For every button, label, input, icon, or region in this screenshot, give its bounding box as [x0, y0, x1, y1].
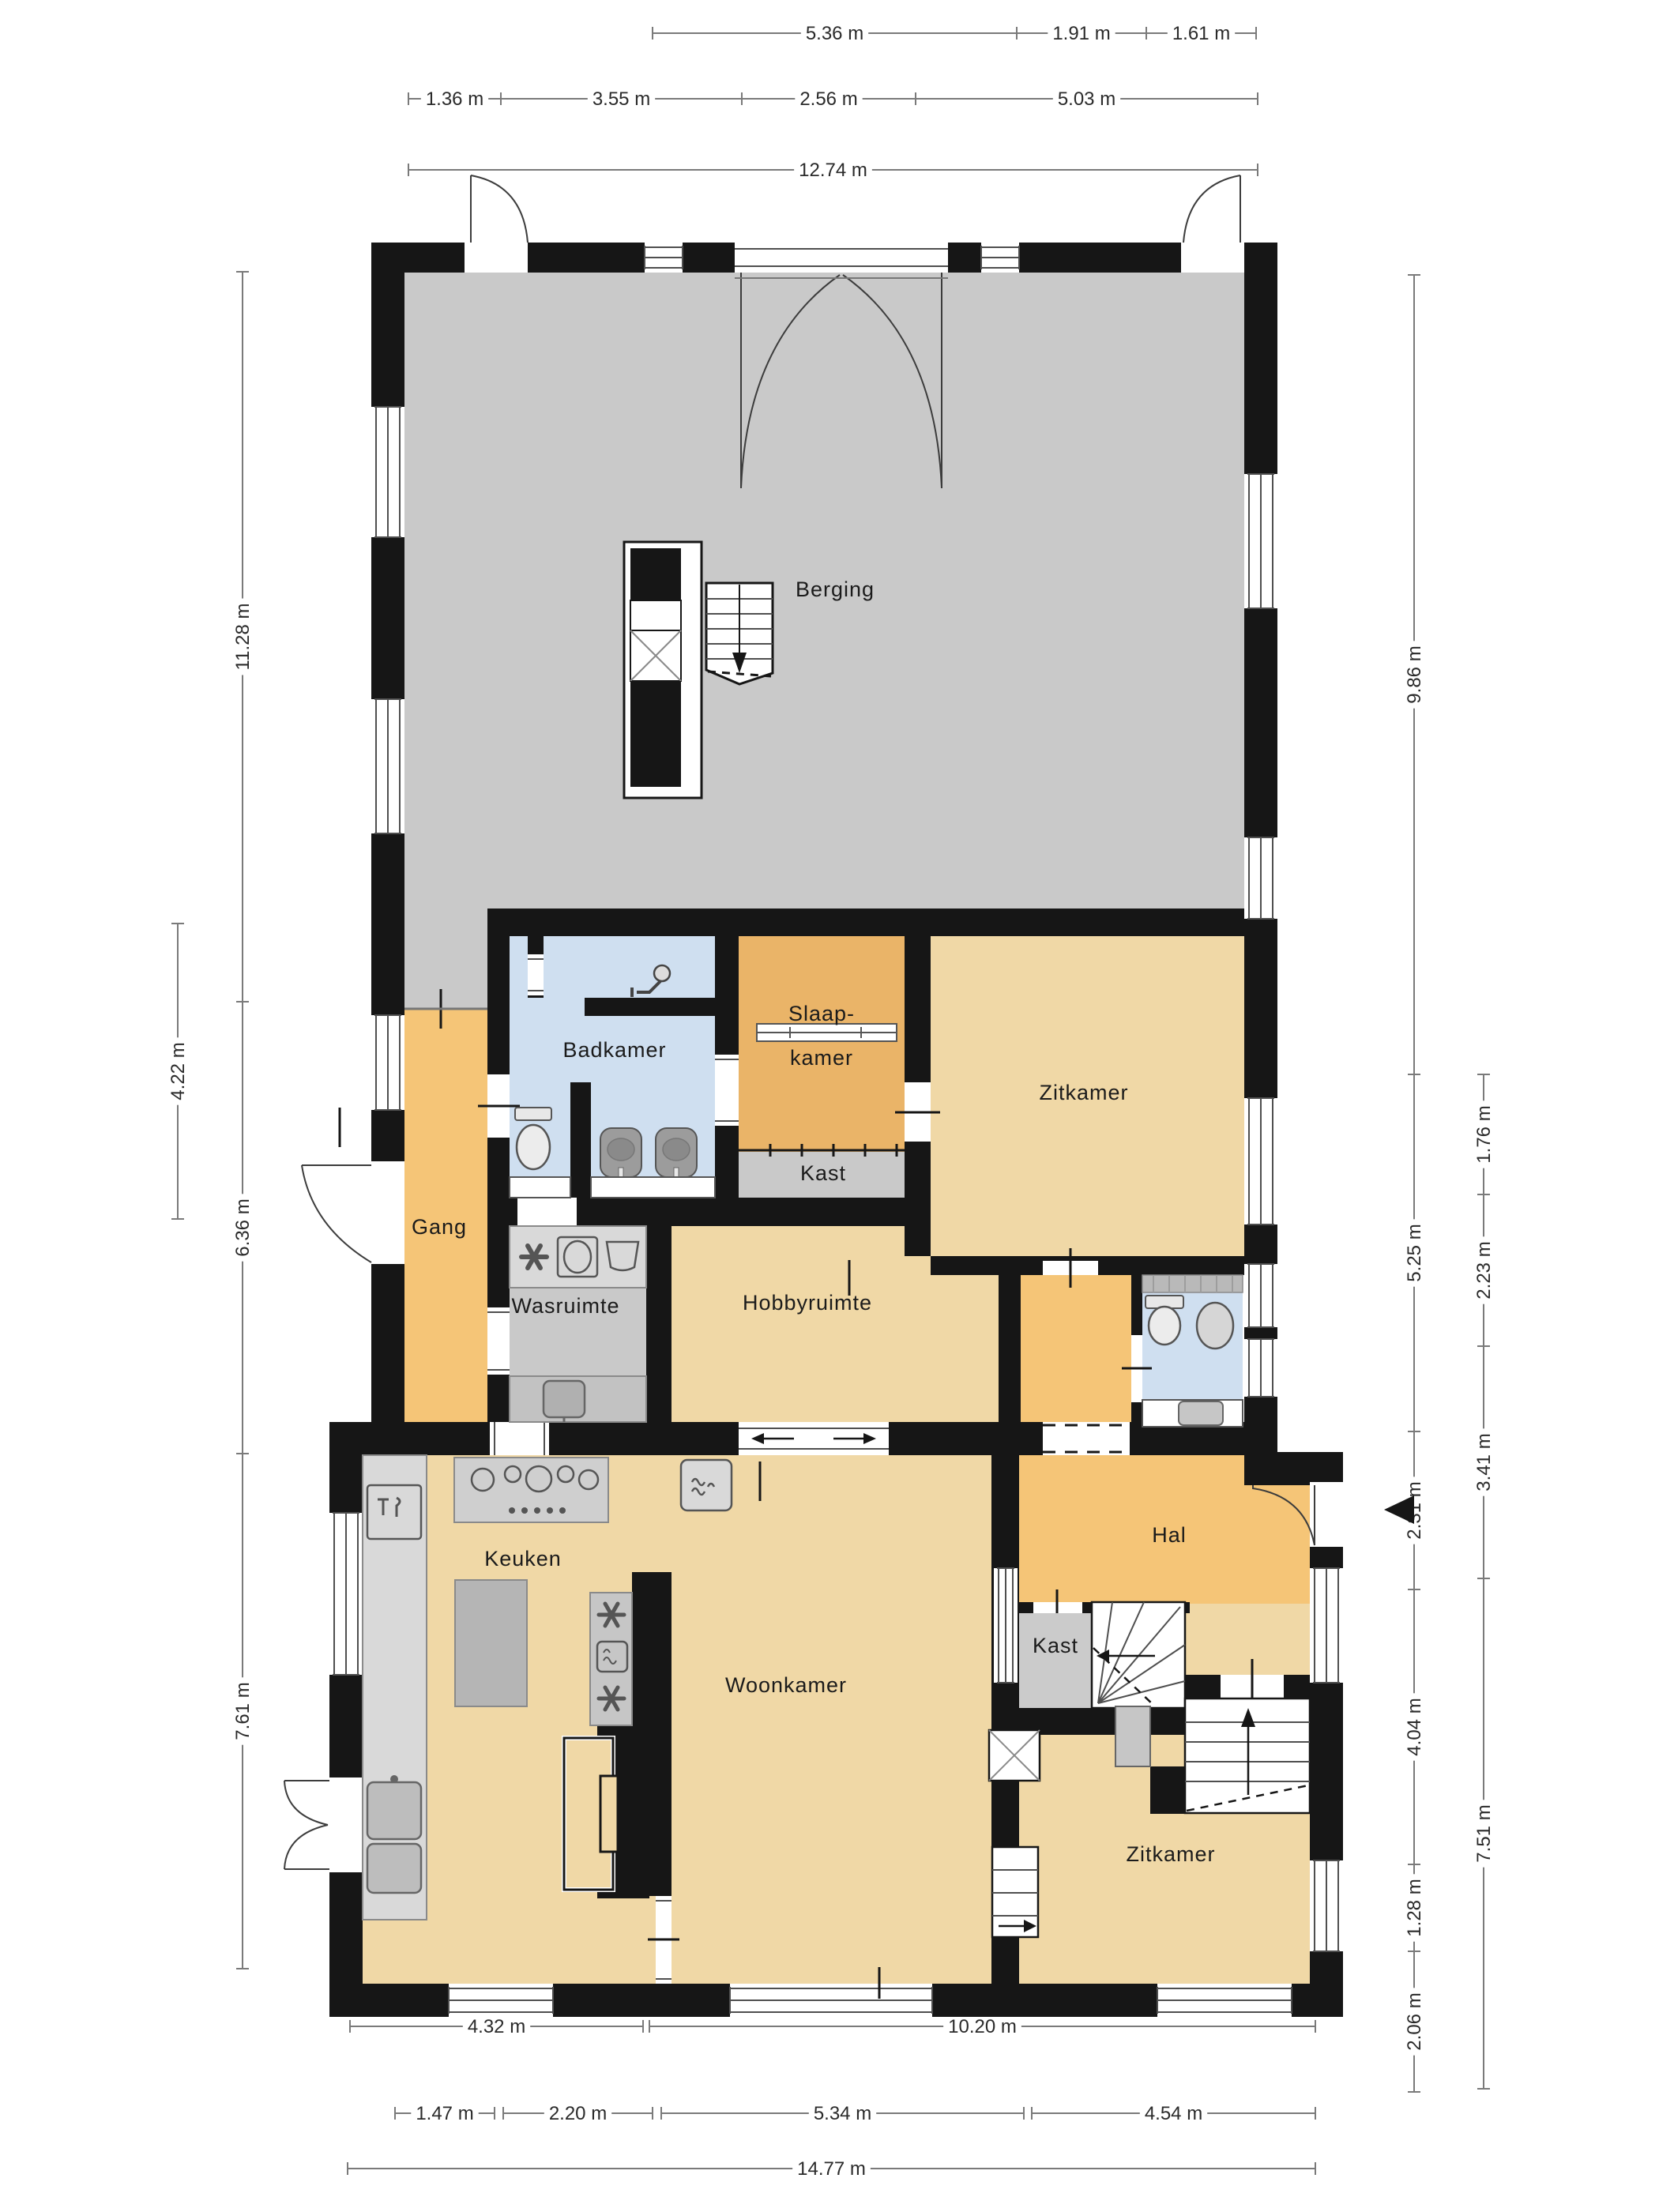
wc-radiator — [1142, 1275, 1243, 1292]
keuken-double-door — [284, 1781, 329, 1869]
badkamer-toilet — [515, 1108, 551, 1169]
badkamer-counter-right — [591, 1177, 715, 1198]
room-label-keuken: Keuken — [484, 1547, 562, 1571]
wall — [585, 998, 715, 1016]
window — [1244, 1264, 1277, 1327]
dimension: 2.56 m — [742, 87, 916, 111]
dimension-label: 1.36 m — [426, 88, 483, 110]
dimension: 4.04 m — [1402, 1589, 1427, 1864]
dimension-label: 10.20 m — [948, 2016, 1017, 2037]
wall — [1150, 1766, 1185, 1814]
dimension: 7.61 m — [231, 1454, 255, 1969]
room-label-wasruimte: Wasruimte — [511, 1294, 619, 1318]
opening-rail — [735, 243, 948, 273]
window — [449, 1984, 553, 2017]
dimension-label: 3.55 m — [592, 88, 650, 110]
floorplan-page: 5.36 m1.91 m1.61 m1.36 m3.55 m2.56 m5.03… — [0, 0, 1659, 2212]
winder-stairs — [1092, 1602, 1185, 1708]
window — [1310, 1568, 1343, 1683]
floorplan-drawing: 5.36 m1.91 m1.61 m1.36 m3.55 m2.56 m5.03… — [0, 0, 1659, 2212]
dimension: 5.25 m — [1402, 1074, 1427, 1431]
wc-counter — [1142, 1400, 1243, 1427]
hal-cabinet — [1115, 1706, 1150, 1766]
dimension: 1.91 m — [1017, 21, 1146, 46]
window — [371, 699, 404, 833]
dimension: 14.77 m — [348, 2157, 1315, 2181]
room-label-hal: Hal — [1152, 1523, 1187, 1547]
opening-dash — [1043, 1422, 1130, 1455]
window — [1244, 1098, 1277, 1224]
room-label-hobbyruimte: Hobbyruimte — [743, 1291, 872, 1315]
badkamer-counter-left — [510, 1177, 570, 1198]
opening-plain — [517, 1198, 577, 1226]
keuken-oven-icon — [681, 1460, 732, 1510]
room-label-zitkamer-onder: Zitkamer — [1126, 1842, 1215, 1866]
dimension: 2.23 m — [1472, 1194, 1496, 1346]
floor-hobbyruimte — [671, 1226, 999, 1422]
floor-corridor — [1021, 1275, 1131, 1422]
dimension-label: 4.04 m — [1404, 1698, 1425, 1755]
room-label-zitkamer-boven: Zitkamer — [1039, 1081, 1128, 1104]
dimension: 4.22 m — [166, 924, 190, 1219]
badkamer-sink-right — [656, 1128, 697, 1177]
dimension-label: 6.36 m — [232, 1198, 254, 1256]
steps-woonkamer-zitkamer — [992, 1847, 1038, 1937]
opening-lines-h — [528, 954, 544, 995]
dimension-label: 5.03 m — [1058, 88, 1115, 110]
dimension: 11.28 m — [231, 272, 255, 1002]
dimension-label: 11.28 m — [232, 604, 254, 671]
floor-keuken-woonkamer — [363, 1455, 991, 1984]
dimension: 7.51 m — [1472, 1578, 1496, 2089]
berging-cabinet-column — [624, 542, 702, 798]
dimension: 5.03 m — [916, 87, 1258, 111]
slaapkamer-sliding-door — [757, 1024, 897, 1041]
opening-plain — [1181, 243, 1244, 273]
dimension: 2.20 m — [503, 2101, 653, 2126]
dimension: 4.32 m — [350, 2014, 643, 2039]
dimension-label: 1.28 m — [1404, 1879, 1425, 1936]
opening-lines-h — [487, 1307, 510, 1375]
room-label-kast-onder: Kast — [1033, 1634, 1078, 1657]
room-label-slaapkamer-2: kamer — [790, 1046, 853, 1070]
dimension-label: 1.76 m — [1473, 1105, 1495, 1163]
wall — [329, 1422, 363, 2017]
window — [981, 243, 1019, 273]
opening-slide — [739, 1422, 889, 1455]
dimension: 9.86 m — [1402, 275, 1427, 1074]
keuken-island — [455, 1580, 527, 1706]
opening-plain — [371, 1161, 404, 1264]
opening-lines-h — [715, 1055, 739, 1126]
dimension-label: 14.77 m — [797, 2158, 866, 2180]
window — [329, 1513, 363, 1675]
wasruimte-counter-bottom — [510, 1376, 646, 1422]
window — [1157, 1984, 1292, 2017]
dimension-label: 4.54 m — [1145, 2103, 1202, 2124]
dimension-label: 7.61 m — [232, 1682, 254, 1740]
gang-exterior-door — [302, 1165, 371, 1262]
window — [645, 243, 683, 273]
dimension: 12.74 m — [408, 158, 1258, 182]
wall — [646, 1226, 671, 1455]
window — [1310, 1860, 1343, 1951]
wc-toilet — [1197, 1303, 1233, 1349]
berging-stairs-down — [706, 583, 773, 684]
dimension-label: 7.51 m — [1473, 1804, 1495, 1862]
floor-berging-strip — [404, 908, 487, 1009]
kast-onder-floor — [1019, 1613, 1092, 1708]
dimension-label: 5.25 m — [1404, 1224, 1425, 1281]
dimension-label: 4.32 m — [468, 2016, 525, 2037]
wall — [570, 1082, 591, 1198]
dimension: 4.54 m — [1032, 2101, 1315, 2126]
dimension: 1.47 m — [395, 2101, 495, 2126]
dimension-label: 2.06 m — [1404, 1992, 1425, 2050]
dimension-label: 2.56 m — [799, 88, 857, 110]
window — [1244, 474, 1277, 608]
dimension-label: 2.23 m — [1473, 1241, 1495, 1299]
dimension: 1.61 m — [1146, 21, 1256, 46]
dimension-label: 1.47 m — [416, 2103, 473, 2124]
entrance-arrow — [1384, 1495, 1414, 1524]
opening-lines-v — [490, 1422, 549, 1455]
dimension: 1.76 m — [1472, 1074, 1496, 1194]
wc-sink — [1145, 1296, 1183, 1345]
dimension: 1.36 m — [408, 87, 501, 111]
window — [994, 1568, 1018, 1683]
window — [371, 1015, 404, 1110]
window — [1244, 1339, 1277, 1397]
berging-door-left — [471, 175, 528, 243]
dimension: 5.36 m — [653, 21, 1017, 46]
dimension-label: 12.74 m — [799, 160, 867, 181]
window — [371, 407, 404, 537]
room-label-berging: Berging — [796, 577, 875, 601]
dimension: 3.41 m — [1472, 1346, 1496, 1578]
badkamer-sink-left — [600, 1128, 641, 1177]
dimension-label: 1.91 m — [1052, 23, 1110, 44]
room-label-slaapkamer-1: Slaap- — [788, 1002, 855, 1025]
dimension: 6.36 m — [231, 1002, 255, 1454]
dimension: 10.20 m — [649, 2014, 1315, 2039]
dimension-label: 9.86 m — [1404, 645, 1425, 703]
room-label-badkamer: Badkamer — [562, 1038, 666, 1062]
dimension-label: 1.61 m — [1172, 23, 1230, 44]
shaft-x-icon — [989, 1730, 1040, 1781]
dimension-label: 3.41 m — [1473, 1433, 1495, 1491]
keuken-counter-left — [363, 1455, 427, 1920]
wall — [487, 908, 1244, 936]
berging-door-right — [1183, 175, 1240, 243]
keuken-appliance-column — [590, 1593, 632, 1725]
dimension-label: 4.22 m — [167, 1042, 189, 1100]
dimension-label: 5.34 m — [814, 2103, 871, 2124]
dimension: 2.06 m — [1402, 1951, 1427, 2092]
floor-slaapkamer — [739, 936, 905, 1152]
wasruimte-counter-top — [510, 1226, 646, 1288]
room-label-woonkamer: Woonkamer — [725, 1673, 847, 1697]
opening-plain — [329, 1777, 363, 1872]
fireplace — [564, 1738, 618, 1890]
keuken-sink — [367, 1775, 421, 1893]
shaft-x-icon — [630, 630, 681, 681]
dimension: 5.34 m — [661, 2101, 1024, 2126]
room-label-kast-boven: Kast — [800, 1161, 846, 1185]
dimension-label: 5.36 m — [806, 23, 863, 44]
dimension: 3.55 m — [501, 87, 742, 111]
room-label-gang: Gang — [412, 1215, 467, 1239]
dimension-label: 2.20 m — [549, 2103, 607, 2124]
window — [1244, 837, 1277, 919]
window — [730, 1984, 932, 2017]
dimension: 1.28 m — [1402, 1864, 1427, 1951]
opening-plain — [465, 243, 528, 273]
keuken-stove — [454, 1458, 608, 1522]
